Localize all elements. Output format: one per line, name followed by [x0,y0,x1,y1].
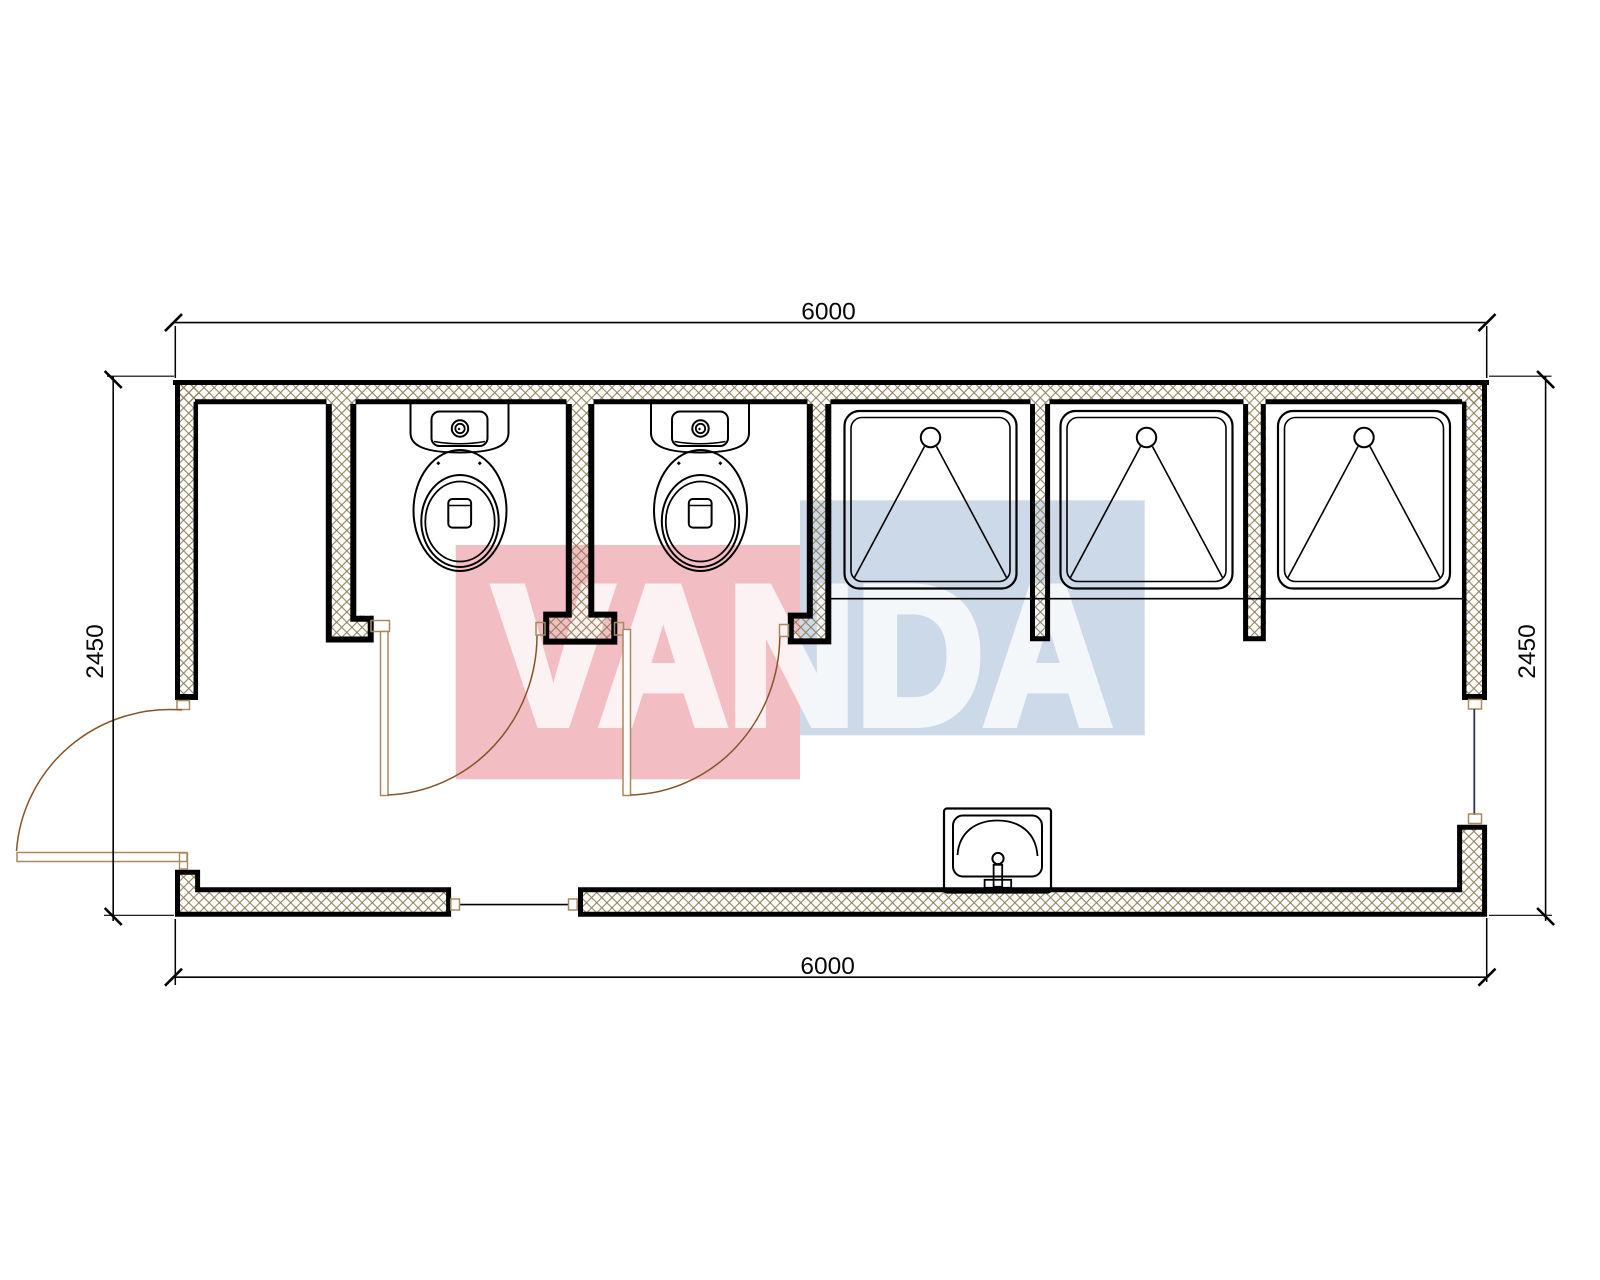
svg-text:2450: 2450 [1514,624,1541,679]
svg-text:6000: 6000 [801,299,856,326]
svg-text:2450: 2450 [82,624,109,679]
svg-text:6000: 6000 [800,953,855,980]
